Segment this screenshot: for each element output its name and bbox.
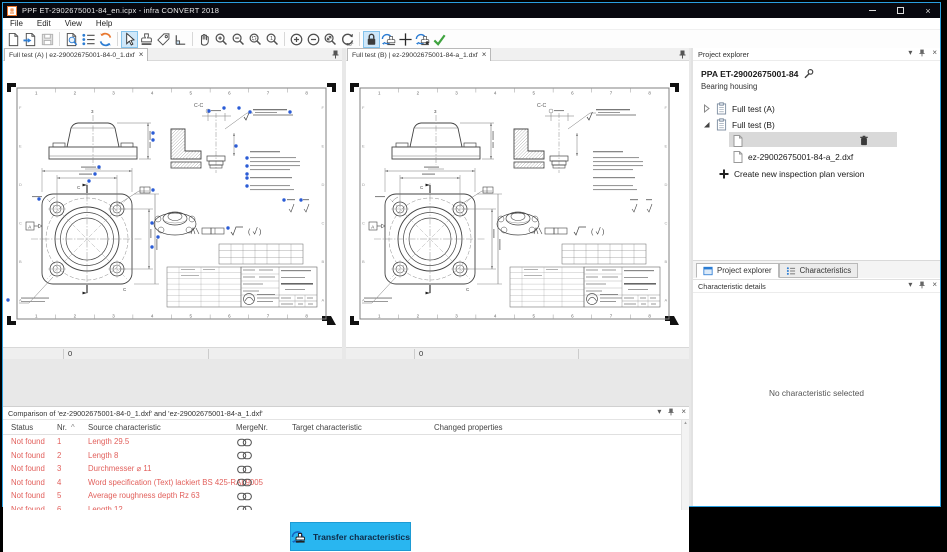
toolbar-separator bbox=[284, 32, 285, 46]
menu-view[interactable]: View bbox=[58, 19, 89, 28]
tab-label: Characteristics bbox=[800, 266, 852, 275]
svg-text:3: 3 bbox=[434, 109, 437, 114]
increase-icon[interactable] bbox=[288, 31, 305, 48]
tab-b-label: Full test (B) | ez-29002675001-84-a_1.dx… bbox=[352, 52, 478, 59]
project-explorer-icon bbox=[703, 266, 713, 276]
svg-text:1: 1 bbox=[35, 314, 38, 319]
svg-text:C: C bbox=[123, 287, 127, 292]
svg-text:C-C: C-C bbox=[537, 103, 546, 109]
comparison-panel: Comparison of 'ez-29002675001-84-0_1.dxf… bbox=[3, 406, 689, 551]
svg-text:2: 2 bbox=[417, 91, 420, 96]
tab-label: Project explorer bbox=[717, 266, 772, 275]
create-action-label: Create new inspection plan version bbox=[734, 169, 864, 179]
tab-characteristics[interactable]: Characteristics bbox=[779, 263, 859, 278]
menu-bar: File Edit View Help bbox=[3, 18, 940, 30]
row-source-characteristic: Length 29.5 bbox=[88, 437, 129, 446]
characteristics-list-icon[interactable] bbox=[80, 31, 97, 48]
col-nr-source[interactable]: Nr. bbox=[57, 423, 67, 432]
title-bar: PPF ET-2902675001-84_en.icpx - infra CON… bbox=[3, 3, 940, 18]
close-icon[interactable]: × bbox=[681, 408, 686, 416]
zoom-selection-icon[interactable] bbox=[247, 31, 264, 48]
svg-text:90°: 90° bbox=[346, 41, 353, 46]
svg-text:C: C bbox=[19, 220, 22, 225]
pin-icon[interactable] bbox=[668, 408, 674, 416]
decrease-icon[interactable] bbox=[305, 31, 322, 48]
tabbar-a: Full test (A) | ez-29002675001-84-0_1.dx… bbox=[3, 48, 342, 61]
menu-help[interactable]: Help bbox=[89, 19, 119, 28]
zoom-fit-icon[interactable] bbox=[322, 31, 339, 48]
svg-text:F: F bbox=[665, 105, 668, 110]
svg-text:4: 4 bbox=[494, 91, 497, 96]
tab-document-b[interactable]: Full test (B) | ez-29002675001-84-a_1.dx… bbox=[347, 48, 491, 61]
svg-text:6: 6 bbox=[571, 91, 574, 96]
svg-text:8: 8 bbox=[305, 91, 308, 96]
sidebar: Project explorer ▾ × PPA ET-29002675001-… bbox=[691, 48, 940, 506]
inspection-plan-icon bbox=[716, 102, 727, 115]
comparison-row[interactable]: Not found5Average roughness depth Rz 63 bbox=[3, 489, 689, 503]
row-status: Not found bbox=[11, 437, 45, 446]
row-nr: 1 bbox=[57, 437, 61, 446]
expander-expanded-icon[interactable] bbox=[703, 120, 711, 129]
characteristic-details-panel: Characteristic details ▾ × No characteri… bbox=[693, 279, 940, 506]
svg-text:D: D bbox=[362, 182, 365, 187]
col-status[interactable]: Status bbox=[11, 423, 33, 432]
document-panel-a: Full test (A) | ez-29002675001-84-0_1.dx… bbox=[3, 48, 342, 359]
svg-text:7: 7 bbox=[267, 314, 270, 319]
merge-link-icon[interactable] bbox=[237, 438, 252, 447]
apply-check-icon[interactable] bbox=[431, 31, 448, 48]
svg-text:2: 2 bbox=[74, 314, 77, 319]
expander-collapsed-icon[interactable] bbox=[703, 104, 711, 113]
svg-text:F: F bbox=[362, 105, 365, 110]
plus-icon bbox=[719, 169, 729, 179]
sort-ascending-icon[interactable]: ^ bbox=[71, 423, 75, 432]
svg-text:3: 3 bbox=[112, 314, 115, 319]
svg-text:F: F bbox=[322, 105, 325, 110]
stamp-tool-icon[interactable] bbox=[138, 31, 155, 48]
svg-text:6: 6 bbox=[571, 314, 574, 319]
svg-text:1: 1 bbox=[270, 36, 273, 42]
comparison-column-header: Status Nr. ^ Source characteristic Merge… bbox=[3, 420, 689, 435]
svg-text:D: D bbox=[665, 182, 668, 187]
tree-item-dxf-a2[interactable]: ez-29002675001-84-a_2.dxf bbox=[693, 149, 940, 164]
svg-text:(: ( bbox=[248, 229, 251, 236]
svg-text:C: C bbox=[665, 220, 668, 225]
row-nr: 2 bbox=[57, 451, 61, 460]
svg-text:(: ( bbox=[591, 229, 594, 236]
svg-text:7: 7 bbox=[267, 91, 270, 96]
comparison-row[interactable]: Not found2Length 8 bbox=[3, 449, 689, 463]
restore-button[interactable] bbox=[894, 5, 906, 16]
comparison-row[interactable]: Not found4Word specification (Text) lack… bbox=[3, 476, 689, 490]
row-status: Not found bbox=[11, 478, 45, 487]
svg-text:C: C bbox=[77, 185, 81, 190]
svg-text:A: A bbox=[28, 224, 31, 229]
tree-item-full-test-b[interactable]: Full test (B) bbox=[693, 117, 940, 132]
svg-text:2: 2 bbox=[74, 91, 77, 96]
find-in-document-icon[interactable] bbox=[63, 31, 80, 48]
tab-project-explorer[interactable]: Project explorer bbox=[696, 263, 779, 278]
app-icon bbox=[7, 6, 17, 16]
svg-text:3: 3 bbox=[91, 109, 94, 114]
col-nr-target[interactable]: Nr. bbox=[258, 423, 268, 432]
app-window: PPF ET-2902675001-84_en.icpx - infra CON… bbox=[2, 2, 941, 507]
svg-text:7: 7 bbox=[610, 91, 613, 96]
transfer-stamp-icon bbox=[291, 529, 307, 545]
svg-text:): ) bbox=[259, 229, 261, 236]
close-icon[interactable]: × bbox=[932, 49, 937, 57]
svg-text:3: 3 bbox=[112, 91, 115, 96]
svg-text:E: E bbox=[362, 143, 365, 148]
svg-text:B: B bbox=[665, 259, 668, 264]
svg-text:): ) bbox=[602, 229, 604, 236]
svg-text:8: 8 bbox=[648, 91, 651, 96]
svg-text:4: 4 bbox=[494, 314, 497, 319]
tree-item-label: ez-29002675001-84-a_2.dxf bbox=[748, 152, 853, 162]
project-name: PPA ET-29002675001-84 bbox=[701, 69, 798, 79]
row-nr: 5 bbox=[57, 491, 61, 500]
row-nr: 4 bbox=[57, 478, 61, 487]
svg-text:4: 4 bbox=[151, 314, 154, 319]
tree-item-label: Full test (B) bbox=[732, 120, 775, 130]
svg-text:5: 5 bbox=[190, 91, 193, 96]
col-merge[interactable]: Merge bbox=[236, 423, 258, 432]
row-status: Not found bbox=[11, 451, 45, 460]
comparison-row[interactable]: Not found3Durchmesser ⌀ 11 bbox=[3, 462, 689, 476]
svg-text:C-C: C-C bbox=[194, 103, 203, 109]
row-source-characteristic: Average roughness depth Rz 63 bbox=[88, 491, 200, 500]
svg-text:A: A bbox=[322, 297, 325, 302]
tab-document-a[interactable]: Full test (A) | ez-29002675001-84-0_1.dx… bbox=[4, 48, 148, 61]
wrench-icon[interactable] bbox=[803, 68, 814, 79]
dropdown-icon[interactable]: ▾ bbox=[908, 49, 912, 57]
project-explorer-title: Project explorer bbox=[698, 50, 749, 59]
new-document-icon[interactable] bbox=[5, 31, 22, 48]
tree-item-dxf-a1[interactable]: ez-29002675001-84-a_1.dxf bbox=[693, 133, 940, 148]
comparison-title: Comparison of 'ez-29002675001-84-0_1.dxf… bbox=[8, 409, 263, 418]
document-panel-b: Full test (B) | ez-29002675001-84-a_1.dx… bbox=[346, 48, 689, 359]
toolbar: 190° bbox=[3, 30, 940, 48]
tree-item-label: Full test (A) bbox=[732, 104, 775, 114]
corner-tool-icon[interactable] bbox=[172, 31, 189, 48]
row-status: Not found bbox=[11, 491, 45, 500]
svg-text:2: 2 bbox=[417, 314, 420, 319]
drawing-sheet-b[interactable]: 1122334455667788AABBCCDDEEFF3C-CCCA() bbox=[346, 61, 689, 347]
toolbar-separator bbox=[117, 32, 118, 46]
transfer-button-label: Transfer characteristics bbox=[313, 532, 410, 542]
window-title: PPF ET-2902675001-84_en.icpx - infra CON… bbox=[22, 6, 219, 15]
merge-link-icon[interactable] bbox=[237, 492, 252, 501]
col-changed-properties[interactable]: Changed properties bbox=[434, 423, 503, 432]
svg-text:1: 1 bbox=[378, 91, 381, 96]
svg-text:B: B bbox=[19, 259, 22, 264]
save-icon[interactable] bbox=[39, 31, 56, 48]
zoom-in-icon[interactable] bbox=[213, 31, 230, 48]
drawing-sheet-a[interactable]: 1122334455667788AABBCCDDEEFF3C-CCCA() bbox=[3, 61, 342, 347]
pan-hand-icon[interactable] bbox=[196, 31, 213, 48]
svg-text:C: C bbox=[322, 220, 325, 225]
toolbar-separator bbox=[59, 32, 60, 46]
toolbar-separator bbox=[192, 32, 193, 46]
open-document-icon[interactable] bbox=[22, 31, 39, 48]
svg-text:8: 8 bbox=[648, 314, 651, 319]
svg-text:3: 3 bbox=[455, 91, 458, 96]
status-bar-b: 0 bbox=[346, 347, 689, 359]
dxf-file-icon bbox=[733, 135, 743, 147]
minimize-button[interactable] bbox=[866, 5, 878, 16]
characteristics-list-icon bbox=[786, 266, 796, 276]
rotate-90-icon[interactable]: 90° bbox=[339, 31, 356, 48]
svg-text:4: 4 bbox=[151, 91, 154, 96]
delete-trash-icon[interactable] bbox=[859, 135, 869, 146]
inspection-plan-icon bbox=[716, 118, 727, 131]
toolbar-separator bbox=[359, 32, 360, 46]
tabbar-b: Full test (B) | ez-29002675001-84-a_1.dx… bbox=[346, 48, 689, 61]
menu-file[interactable]: File bbox=[3, 19, 30, 28]
tab-a-close-icon[interactable]: × bbox=[139, 51, 144, 59]
row-source-characteristic: Durchmesser ⌀ 11 bbox=[88, 464, 151, 473]
svg-text:3: 3 bbox=[455, 314, 458, 319]
svg-text:C: C bbox=[362, 220, 365, 225]
svg-text:E: E bbox=[665, 143, 668, 148]
row-source-characteristic: Length 8 bbox=[88, 451, 118, 460]
status-bar-a: 0 bbox=[3, 347, 342, 359]
comparison-table-body: Not found1Length 29.5Not found2Length 8N… bbox=[3, 435, 689, 521]
transfer-characteristics-button[interactable]: Transfer characteristics bbox=[290, 522, 411, 551]
merge-link-icon[interactable] bbox=[237, 451, 252, 460]
svg-text:1: 1 bbox=[378, 314, 381, 319]
status-value-b: 0 bbox=[419, 349, 423, 358]
svg-text:A: A bbox=[371, 224, 374, 229]
svg-text:B: B bbox=[362, 259, 365, 264]
merge-link-icon[interactable] bbox=[237, 465, 252, 474]
svg-text:5: 5 bbox=[533, 314, 536, 319]
col-source-characteristic[interactable]: Source characteristic bbox=[88, 423, 161, 432]
svg-text:E: E bbox=[322, 143, 325, 148]
tree-item-full-test-a[interactable]: Full test (A) bbox=[693, 101, 940, 116]
dxf-file-icon bbox=[733, 151, 743, 163]
svg-text:D: D bbox=[19, 182, 22, 187]
comparison-scrollbar[interactable]: ▴ bbox=[681, 420, 689, 521]
svg-text:5: 5 bbox=[190, 314, 193, 319]
svg-text:F: F bbox=[19, 105, 22, 110]
col-target-characteristic[interactable]: Target characteristic bbox=[292, 423, 362, 432]
svg-text:6: 6 bbox=[228, 314, 231, 319]
pin-icon[interactable] bbox=[332, 50, 339, 59]
sidebar-tab-strip: Project explorer Characteristics bbox=[693, 260, 940, 278]
svg-text:C: C bbox=[420, 185, 424, 190]
svg-text:A: A bbox=[665, 297, 668, 302]
pin-icon[interactable] bbox=[679, 50, 686, 59]
svg-text:6: 6 bbox=[228, 91, 231, 96]
project-explorer-tree: PPA ET-29002675001-84 Bearing housing Fu… bbox=[693, 61, 940, 260]
selection-highlight bbox=[729, 132, 897, 147]
close-button[interactable]: × bbox=[922, 5, 934, 16]
project-explorer-header: Project explorer ▾ × bbox=[693, 48, 940, 61]
svg-text:7: 7 bbox=[610, 314, 613, 319]
pin-icon[interactable] bbox=[919, 49, 925, 57]
menu-edit[interactable]: Edit bbox=[30, 19, 58, 28]
svg-text:D: D bbox=[322, 182, 325, 187]
project-subtitle: Bearing housing bbox=[701, 82, 757, 91]
svg-text:1: 1 bbox=[35, 91, 38, 96]
tag-tool-icon[interactable] bbox=[155, 31, 172, 48]
select-cursor-icon[interactable] bbox=[121, 31, 138, 48]
svg-text:E: E bbox=[19, 143, 22, 148]
create-inspection-plan-action[interactable]: Create new inspection plan version bbox=[693, 166, 940, 181]
merge-link-icon[interactable] bbox=[237, 478, 252, 487]
crosshair-icon[interactable] bbox=[397, 31, 414, 48]
update-drawing-icon[interactable] bbox=[97, 31, 114, 48]
lock-icon[interactable] bbox=[363, 31, 380, 48]
row-status: Not found bbox=[11, 464, 45, 473]
dropdown-icon[interactable]: ▾ bbox=[657, 408, 661, 416]
comparison-row[interactable]: Not found1Length 29.5 bbox=[3, 435, 689, 449]
zoom-original-icon[interactable]: 1 bbox=[264, 31, 281, 48]
status-value-a: 0 bbox=[68, 349, 72, 358]
svg-text:8: 8 bbox=[305, 314, 308, 319]
transfer-stamp-icon[interactable] bbox=[380, 31, 397, 48]
svg-text:B: B bbox=[322, 259, 325, 264]
tab-a-label: Full test (A) | ez-29002675001-84-0_1.dx… bbox=[9, 52, 135, 59]
svg-text:C: C bbox=[466, 287, 470, 292]
svg-text:5: 5 bbox=[533, 91, 536, 96]
empty-state-message: No characteristic selected bbox=[693, 280, 940, 506]
zoom-out-icon[interactable] bbox=[230, 31, 247, 48]
tab-b-close-icon[interactable]: × bbox=[482, 51, 487, 59]
transfer-stamp-settings-icon[interactable] bbox=[414, 31, 431, 48]
row-nr: 3 bbox=[57, 464, 61, 473]
